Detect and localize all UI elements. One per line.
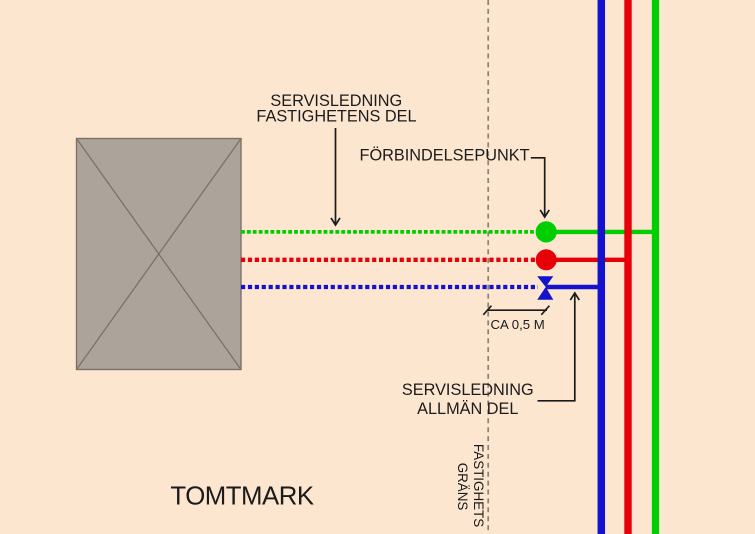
svg-text:ALLMÄN DEL: ALLMÄN DEL (417, 400, 518, 418)
svg-text:FÖRBINDELSEPUNKT: FÖRBINDELSEPUNKT (360, 146, 530, 164)
svg-text:TOMTMARK: TOMTMARK (170, 483, 313, 511)
svg-text:FASTIGHETENS DEL: FASTIGHETENS DEL (256, 108, 416, 126)
svg-text:SERVISLEDNING: SERVISLEDNING (402, 381, 534, 399)
svg-text:GRÄNS: GRÄNS (455, 463, 470, 511)
svg-text:CA 0,5 M: CA 0,5 M (491, 317, 545, 332)
svg-text:FASTIGHETS: FASTIGHETS (471, 444, 486, 527)
